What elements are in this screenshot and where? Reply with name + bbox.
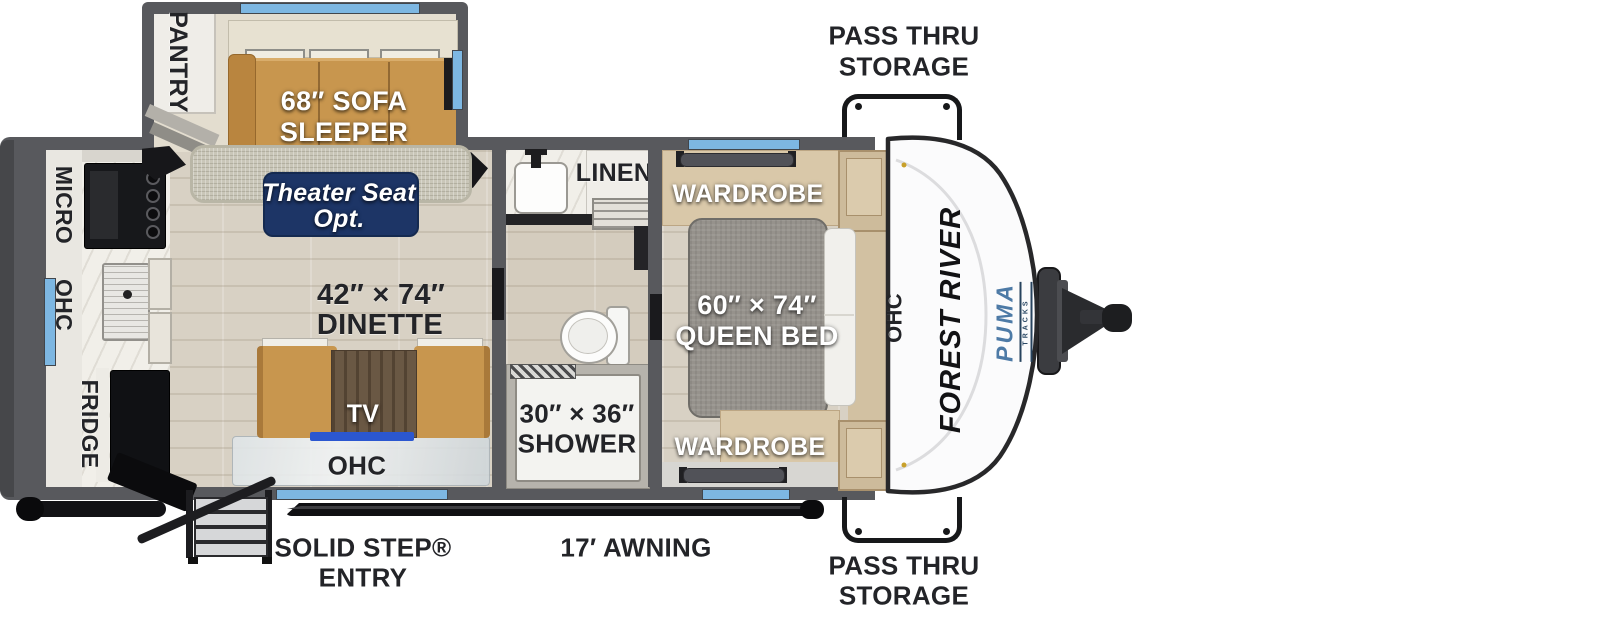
puma-tracks-logo: PUMA TRACKS [992,282,1033,362]
dinette-ohc-label: OHC [328,452,387,479]
burner-icon [146,189,160,203]
bedroom-window-bottom [702,489,790,500]
burner-icon [146,207,160,221]
dinette-bench-left [257,346,337,438]
bath-door-jamb [634,226,648,270]
kitchen-window [44,278,56,366]
wardrobe-top-label: WARDROBE [672,181,823,207]
bed-label-line1: 60″ × 74″ [697,291,816,319]
solid-step-label-line1: SOLID STEP® [274,534,451,561]
slideout-side-window [452,50,463,110]
bath-door [492,268,504,320]
oven-door [90,171,118,239]
screw-icon [902,463,907,468]
slideout-window [240,3,420,14]
screw-icon [902,163,907,168]
tongue-jack [1038,268,1060,374]
floorplan-scene: PASS THRU STORAGE MICRO OHC FRIDGE PANTR… [0,0,1600,625]
sofa-label-line1: 68″ SOFA [281,87,407,115]
step-foot [262,557,272,564]
bedroom-window-top [688,139,800,150]
latch-dot [943,528,950,535]
wardrobe-rod-bottom [683,468,785,483]
rear-wall-cap [0,140,14,497]
linen-label: LINEN [576,160,653,186]
cabinet-door [148,312,172,364]
dinette-label-line2: DINETTE [317,310,443,340]
solid-step-label-line2: ENTRY [319,564,408,591]
sofa-label-line2: SLEEPER [280,118,408,146]
bath-sink [514,162,568,214]
shower-label-line1: 30″ × 36″ [519,400,634,427]
theater-seat-label-line2: Opt. [313,206,364,232]
awning-end-cap [800,500,824,519]
bedroom-ohc-label: OHC [884,293,907,343]
dinette-window [276,489,448,500]
pass-thru-storage-bottom-label-line2: STORAGE [839,582,969,609]
puma-logo-text: PUMA [992,282,1019,362]
theater-seat-label-line1: Theater Seat [262,180,416,206]
latch-dot [855,528,862,535]
hitch-coupler [1102,304,1132,332]
step-foot [188,557,198,564]
bedroom-door [650,294,662,340]
wardrobe-bottom-label: WARDROBE [674,434,825,460]
kitchen-sink [102,263,150,341]
faucet-icon [123,290,132,299]
wardrobe-rod-top [680,153,794,167]
bed-label-line2: QUEEN BED [675,322,838,350]
dinette-label-line1: 42″ × 74″ [317,280,445,310]
dinette-bench-right [414,346,490,438]
pass-thru-storage-bottom-label-line1: PASS THRU [828,552,979,579]
micro-label: MICRO [51,166,75,244]
pantry-label: PANTRY [165,11,191,113]
forest-river-logo: FOREST RIVER [936,207,966,433]
pass-thru-door-outline-bottom [842,497,962,543]
fridge-label: FRIDGE [77,380,101,469]
awning-label: 17′ AWNING [560,534,711,561]
step-tread [194,542,268,557]
cabinet-door [148,258,172,310]
burner-icon [146,225,160,239]
step-tread [194,527,268,542]
step-rail [186,490,193,558]
tracks-logo-text: TRACKS [1020,282,1033,362]
bumper-end-cap [16,497,44,521]
shower-label-line2: SHOWER [518,430,637,457]
pass-thru-storage-top-label-line1: PASS THRU [828,22,979,49]
awning-roller [285,503,809,516]
tv-label: TV [347,401,380,427]
pass-thru-storage-top-label-line2: STORAGE [839,53,969,80]
toilet-seat [568,318,608,354]
sofa-armrest [228,54,256,152]
faucet-icon [531,150,541,168]
awning-highlight [287,506,805,509]
tv-shelf-accent [310,432,414,441]
shower-door-track [510,364,576,379]
